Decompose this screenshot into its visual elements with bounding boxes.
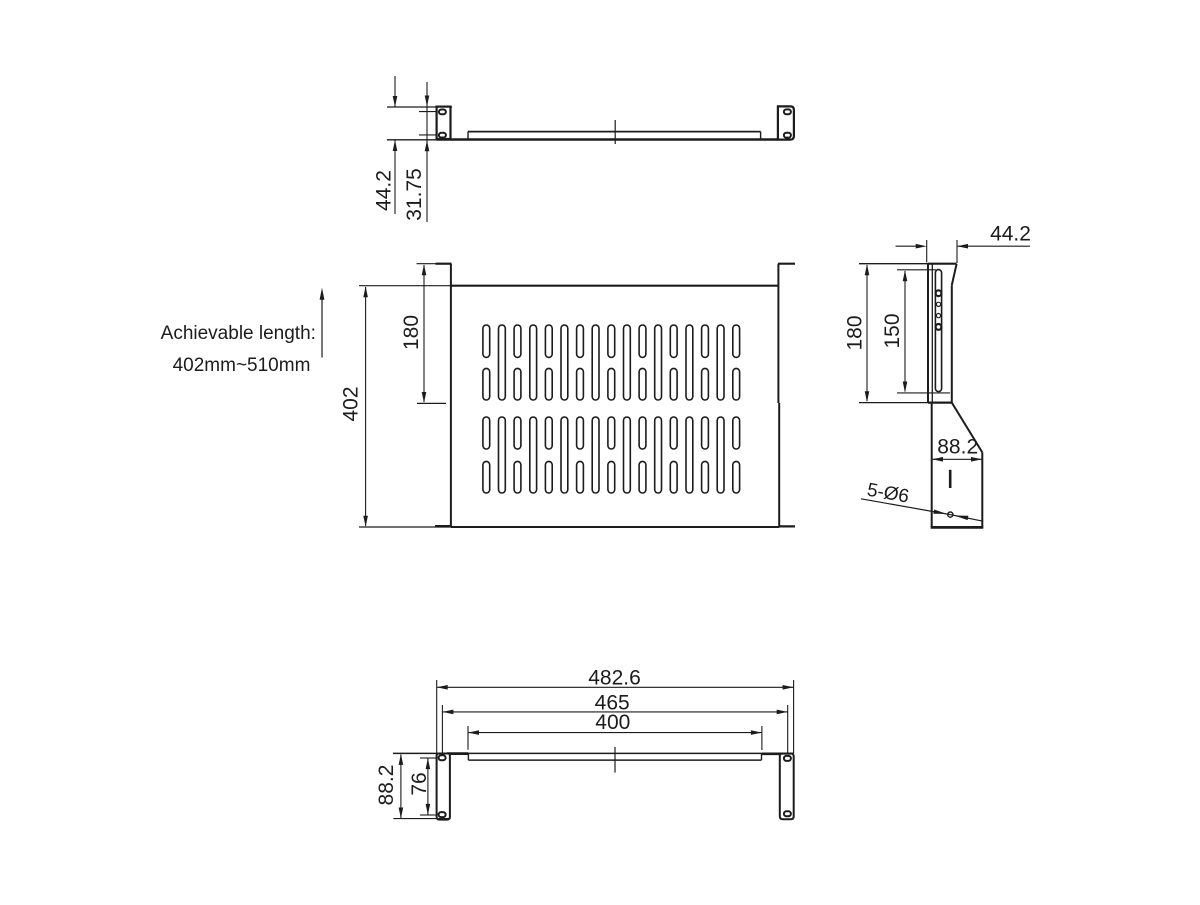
svg-text:44.2: 44.2 — [373, 170, 396, 211]
svg-text:150: 150 — [881, 313, 904, 348]
svg-text:76: 76 — [408, 772, 431, 795]
svg-text:44.2: 44.2 — [990, 223, 1031, 246]
svg-text:400: 400 — [595, 711, 630, 734]
svg-text:402mm~510mm: 402mm~510mm — [173, 355, 311, 376]
svg-text:31.75: 31.75 — [403, 168, 426, 221]
svg-text:Achievable length:: Achievable length: — [161, 323, 316, 344]
svg-text:180: 180 — [844, 315, 867, 350]
svg-text:402: 402 — [340, 386, 363, 421]
svg-text:88.2: 88.2 — [937, 435, 978, 458]
svg-text:482.6: 482.6 — [588, 667, 641, 690]
svg-text:180: 180 — [400, 315, 423, 350]
svg-text:88.2: 88.2 — [375, 765, 398, 806]
